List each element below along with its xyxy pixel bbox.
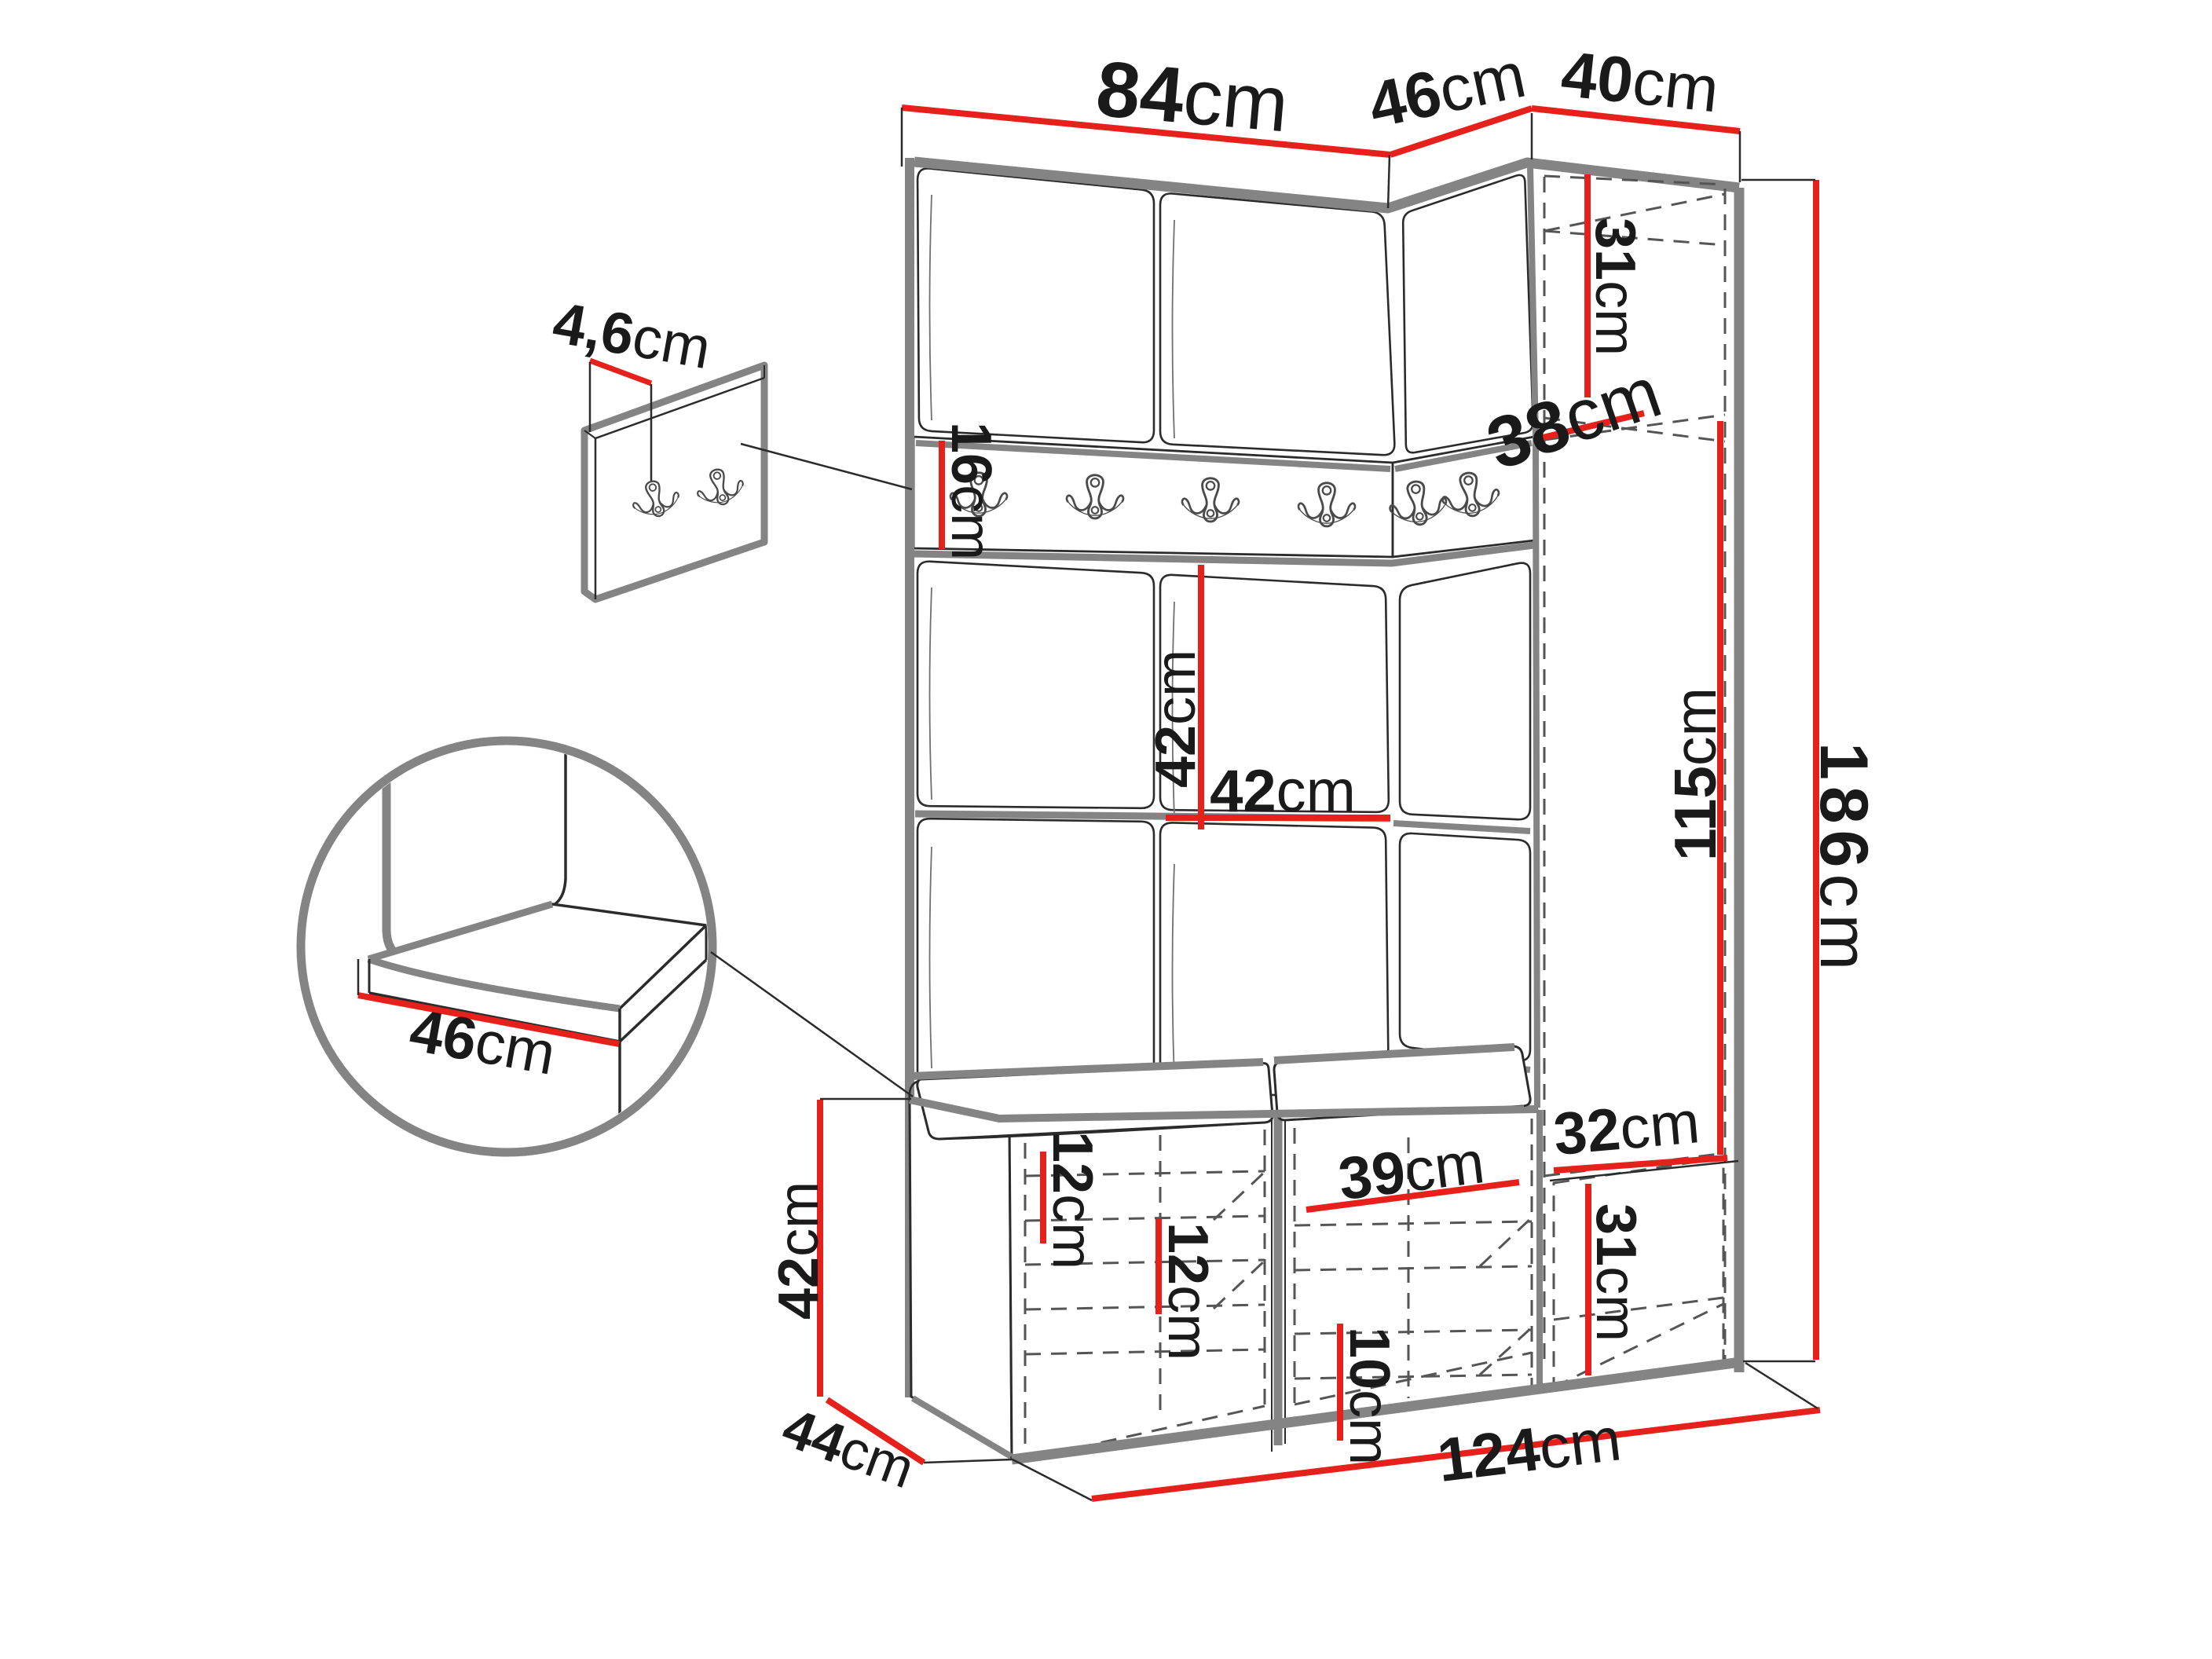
svg-text:115cm: 115cm [1662, 687, 1728, 861]
svg-text:186cm: 186cm [1806, 742, 1881, 976]
svg-text:84cm: 84cm [1093, 45, 1291, 149]
svg-text:42cm: 42cm [1210, 758, 1356, 825]
svg-text:16cm: 16cm [939, 422, 1002, 560]
svg-text:32cm: 32cm [1551, 1089, 1702, 1168]
svg-text:31cm: 31cm [1584, 218, 1646, 356]
svg-text:12cm: 12cm [1156, 1222, 1219, 1361]
svg-text:42cm: 42cm [767, 1181, 830, 1320]
svg-text:10cm: 10cm [1338, 1327, 1401, 1465]
svg-text:31cm: 31cm [1584, 1203, 1647, 1342]
svg-text:42cm: 42cm [1144, 650, 1207, 788]
svg-text:12cm: 12cm [1041, 1131, 1104, 1269]
